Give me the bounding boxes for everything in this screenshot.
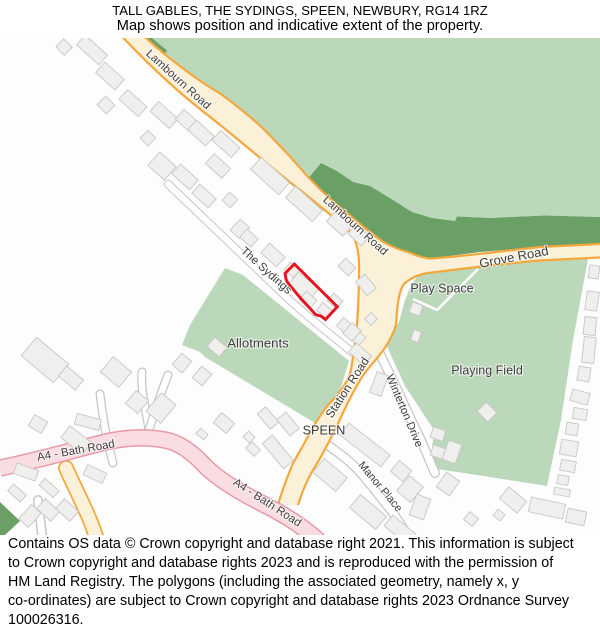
svg-text:Play Space: Play Space (410, 281, 473, 295)
svg-text:SPEEN: SPEEN (303, 423, 346, 437)
svg-text:Playing Field: Playing Field (451, 363, 523, 377)
svg-text:Allotments: Allotments (227, 335, 289, 350)
